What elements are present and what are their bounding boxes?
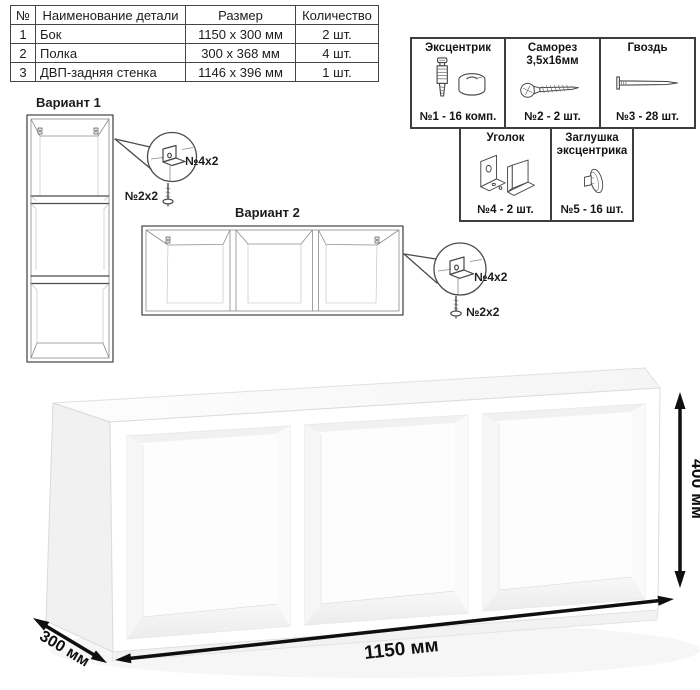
screw-qty-label: №2х2: [466, 305, 500, 319]
shelf-compartment: [127, 426, 290, 639]
variant1-callout: №4х2 №2х2: [115, 133, 219, 207]
shelf-bracket-mark: [375, 237, 379, 243]
shelf-bracket-mark: [94, 128, 98, 134]
shelf-compartment: [305, 415, 468, 625]
screw-qty-label: №2х2: [125, 189, 159, 203]
screw-icon: [451, 296, 461, 319]
shelf-compartment: [483, 404, 645, 611]
variant2-diagram: Вариант 2: [142, 205, 403, 315]
height-label: 400 мм: [688, 459, 700, 519]
assembly-instruction-canvas: № Наименование детали Размер Количество …: [0, 0, 700, 690]
shelf-bracket-mark: [166, 237, 170, 243]
corner-bracket-icon: [450, 257, 474, 278]
height-dimension: 400 мм: [675, 392, 700, 588]
variant1-diagram: Вариант 1: [27, 95, 113, 362]
variant2-title: Вариант 2: [235, 205, 300, 220]
shelf-bracket-mark: [38, 128, 42, 134]
bracket-qty-label: №4х2: [474, 270, 508, 284]
variant1-title: Вариант 1: [36, 95, 101, 110]
corner-bracket-icon: [163, 146, 185, 166]
screw-icon: [163, 183, 173, 207]
bracket-qty-label: №4х2: [185, 154, 219, 168]
variant2-callout: №4х2 №2х2: [404, 243, 508, 319]
shelf-left-face: [46, 403, 113, 652]
